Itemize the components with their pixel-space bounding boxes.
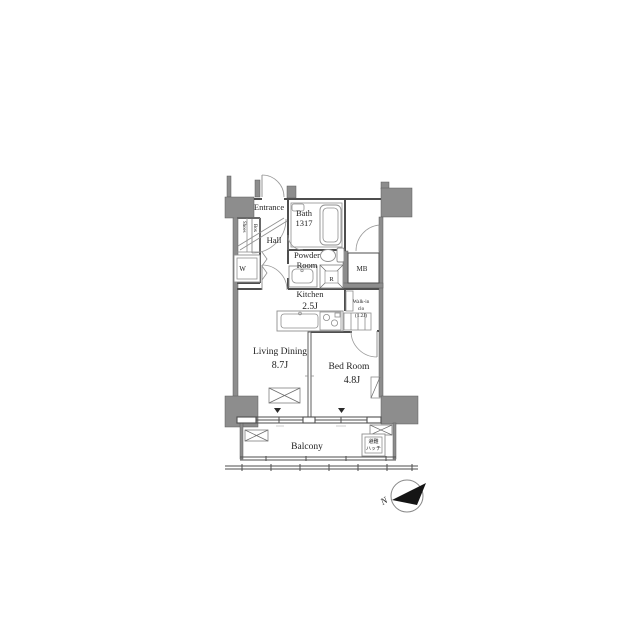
column-top-right (381, 188, 412, 217)
door-jamb-right (287, 186, 296, 198)
bath-label: Bath (296, 208, 313, 218)
partition-living-bedroom (308, 332, 311, 421)
wall-top-strip (227, 176, 231, 197)
wall-seg (303, 417, 315, 423)
bifold-door (262, 252, 267, 280)
wic-label-1: Walk-in (353, 299, 370, 305)
powder-room-label-2: Room (297, 260, 318, 270)
hall-label: Hall (267, 235, 282, 245)
window-marker-bedroom (338, 408, 345, 413)
refrigerator-label: R (329, 276, 334, 283)
washer-label: W (239, 265, 246, 273)
wall-seg (367, 417, 381, 423)
compass: N (378, 480, 426, 512)
living-hatch-box (269, 388, 300, 403)
window-marker-living (274, 408, 281, 413)
bed-room-size-label: 4.8J (344, 375, 361, 386)
wic-label-3: (1.2J) (355, 312, 367, 319)
entrance-label: Entrance (254, 202, 284, 212)
balcony-unit-right (370, 425, 392, 435)
meter-box-label: MB (357, 265, 368, 273)
column-top-left (225, 197, 254, 218)
column-bottom-right (381, 396, 418, 424)
washing-machine (234, 255, 260, 282)
front-door-arc (262, 175, 284, 197)
shoes-box-label-2: Box (252, 224, 257, 233)
building-edge-ticks (242, 464, 412, 471)
evacuation-hatch-label-1: 避難 (368, 438, 378, 445)
bath-size-label: 1317 (296, 218, 313, 228)
kitchen-counter (277, 311, 343, 331)
balcony-wall-right (393, 423, 396, 459)
wic-label-2: clo (358, 306, 365, 312)
powder-room-label-1: Powder (294, 250, 320, 260)
bath-door-arc (288, 235, 303, 250)
window-bedroom-sash (315, 417, 367, 423)
corridor-door-arc (356, 225, 379, 251)
hall-door-arc (262, 265, 287, 290)
floor-plan-canvas: N Entrance Bath 1317 Powder Room Hall W … (0, 0, 640, 640)
kitchen-label: Kitchen (297, 289, 325, 299)
living-dining-size-label: 8.7J (272, 360, 289, 371)
door-jamb-left (255, 180, 260, 197)
balcony-label: Balcony (291, 442, 323, 452)
toilet (321, 248, 345, 262)
evacuation-hatch-label-2: ハッチ (366, 446, 381, 452)
living-dining-label: Living Dining (253, 347, 307, 357)
ac-unit-bedroom (371, 377, 380, 398)
balcony-unit-left (245, 430, 268, 441)
shoes-box-label-1: Shoes (241, 221, 246, 233)
floor-plan-drawing: N Entrance Bath 1317 Powder Room Hall W … (0, 0, 640, 640)
closet-door-arc (351, 331, 377, 357)
evacuation-hatch (362, 434, 385, 456)
window-living-sash (256, 417, 303, 423)
compass-needle-icon (392, 483, 426, 505)
wall-mb-bottom (343, 283, 383, 288)
building-edge (225, 466, 418, 469)
wall-seg (237, 417, 256, 423)
kitchen-size-label: 2.5J (302, 302, 318, 312)
bed-room-label: Bed Room (329, 362, 371, 372)
balcony-edge (240, 457, 396, 460)
wall-right (379, 217, 383, 397)
compass-north-label: N (378, 496, 390, 509)
balcony-wall-left (240, 423, 243, 459)
